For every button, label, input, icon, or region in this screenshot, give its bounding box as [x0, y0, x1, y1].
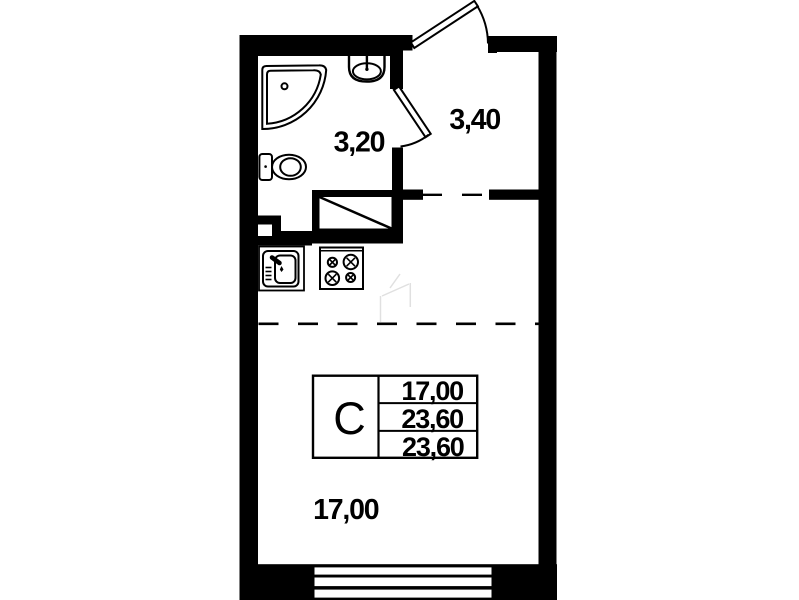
svg-text:23,60: 23,60 — [401, 404, 463, 434]
svg-text:3,40: 3,40 — [449, 104, 500, 136]
svg-text:3,20: 3,20 — [334, 127, 385, 159]
svg-text:17,00: 17,00 — [401, 376, 463, 406]
svg-text:23,60: 23,60 — [402, 432, 464, 462]
svg-text:C: C — [333, 393, 366, 444]
svg-text:17,00: 17,00 — [313, 494, 379, 526]
